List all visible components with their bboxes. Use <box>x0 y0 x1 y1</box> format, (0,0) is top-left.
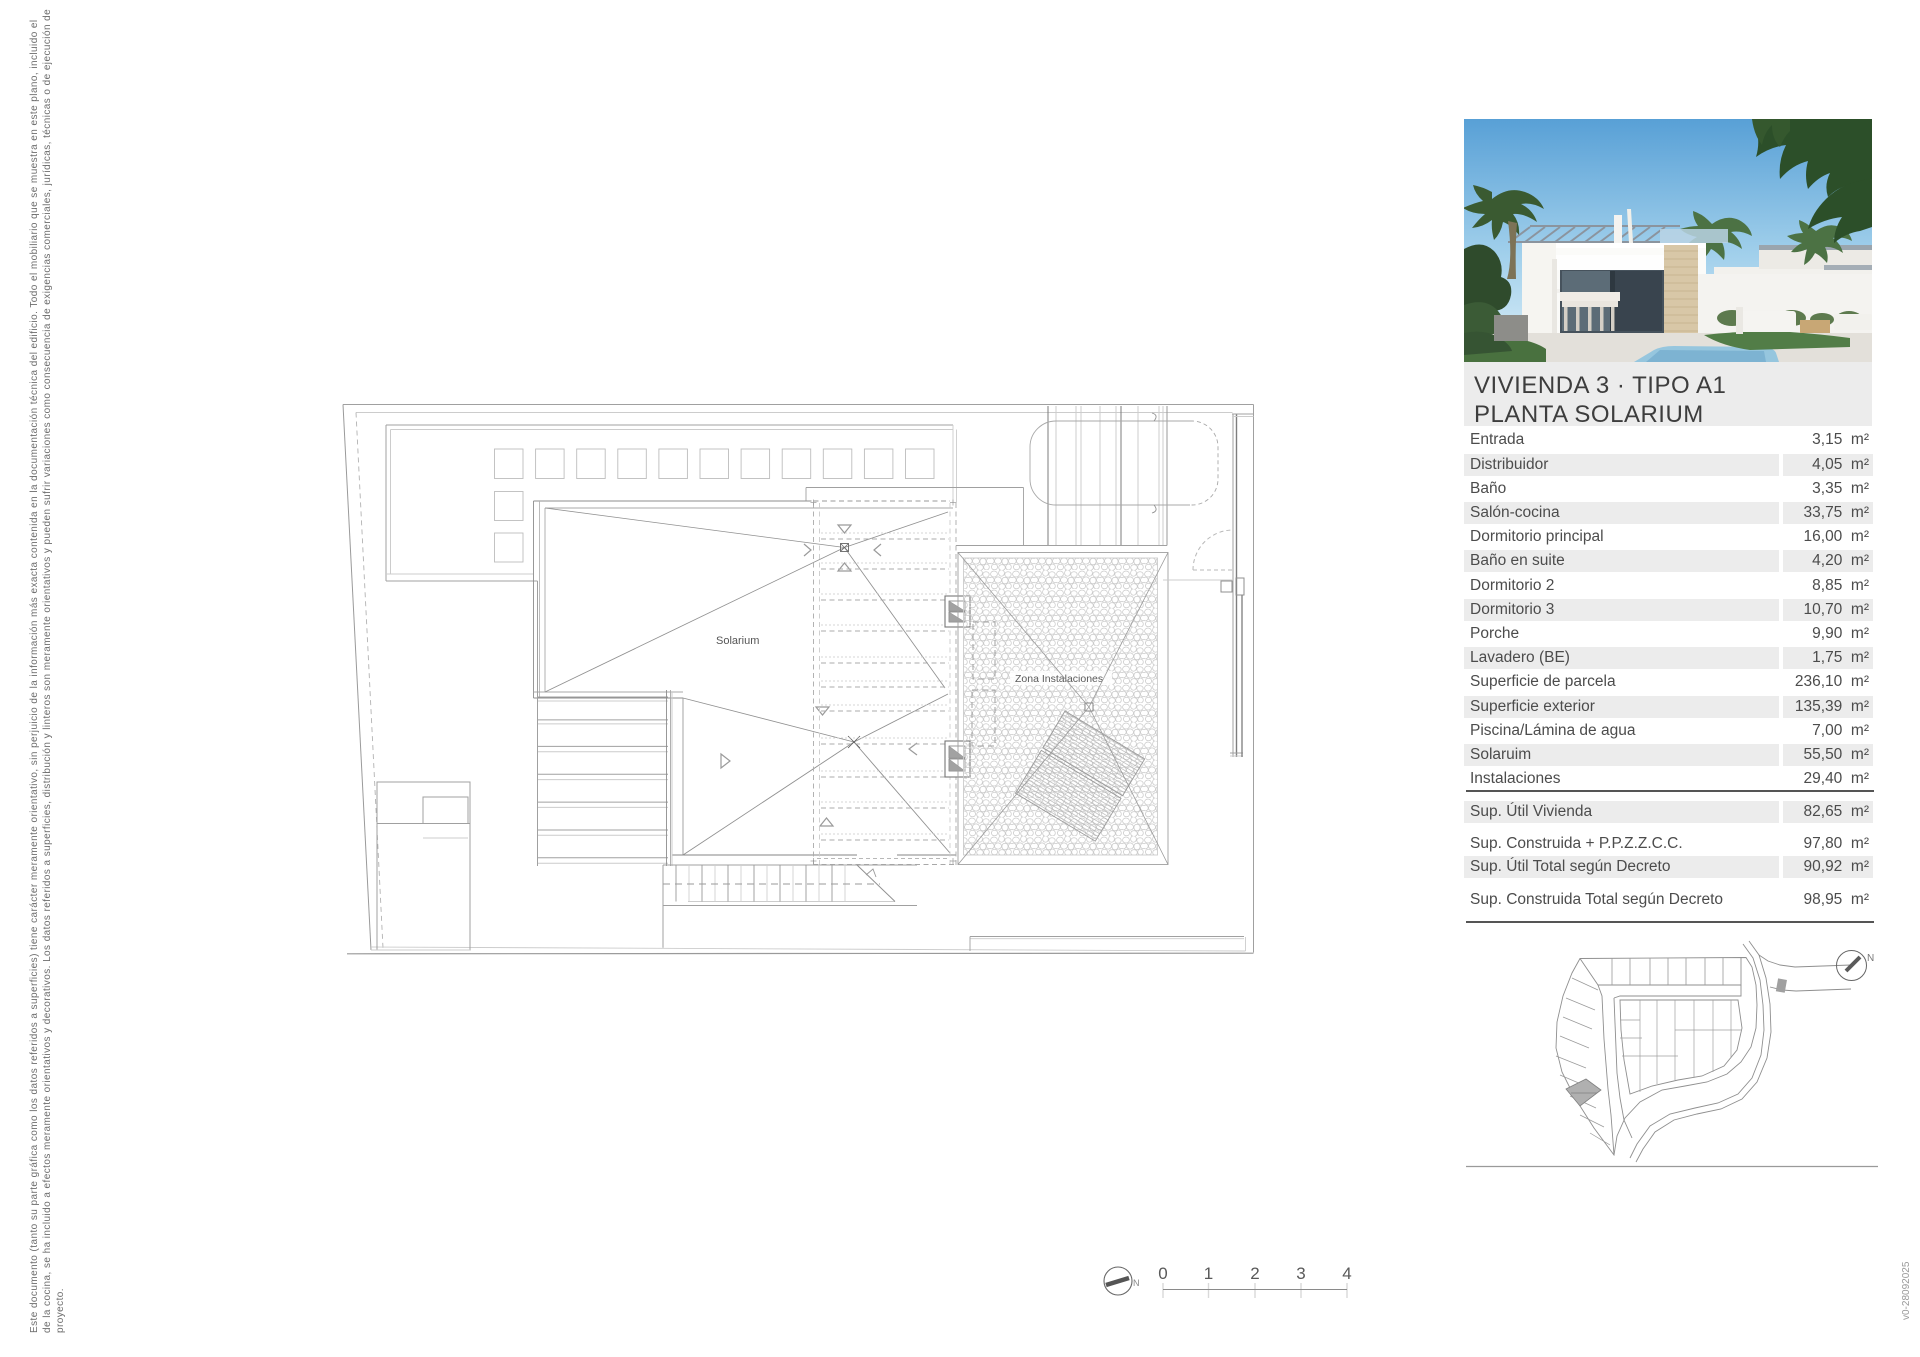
svg-text:N: N <box>1867 953 1874 964</box>
svg-text:3: 3 <box>1296 1264 1305 1283</box>
svg-text:Solarium: Solarium <box>716 635 759 647</box>
svg-text:4: 4 <box>1342 1264 1351 1283</box>
svg-text:2: 2 <box>1250 1264 1259 1283</box>
svg-text:N: N <box>1133 1278 1140 1288</box>
svg-text:Zona Instalaciones: Zona Instalaciones <box>1015 673 1103 685</box>
svg-text:0: 0 <box>1158 1264 1167 1283</box>
svg-text:1: 1 <box>1204 1264 1213 1283</box>
